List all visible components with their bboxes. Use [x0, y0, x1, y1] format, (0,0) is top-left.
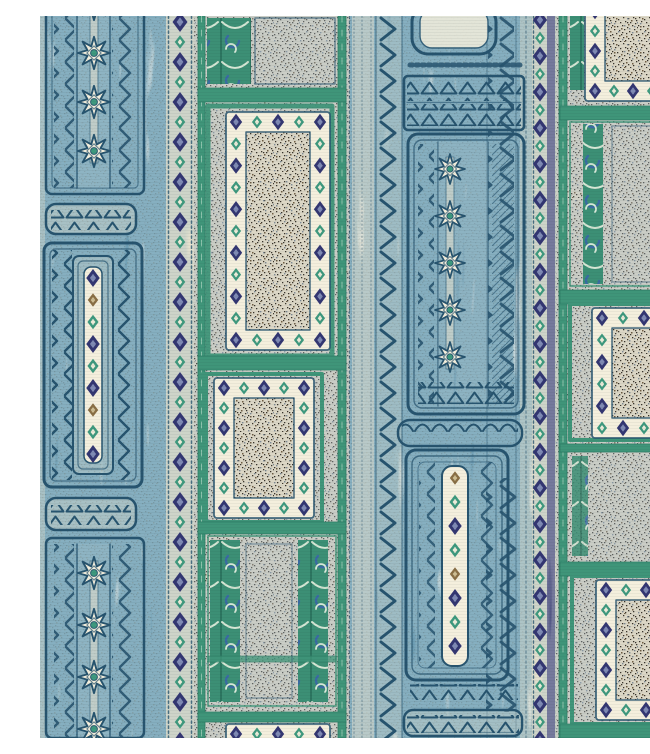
- fabric-swatch: Indigo batik-style striped fabric with s…: [40, 16, 650, 738]
- fabric-pattern-svg: [40, 16, 650, 738]
- weave-overlay: [40, 16, 650, 738]
